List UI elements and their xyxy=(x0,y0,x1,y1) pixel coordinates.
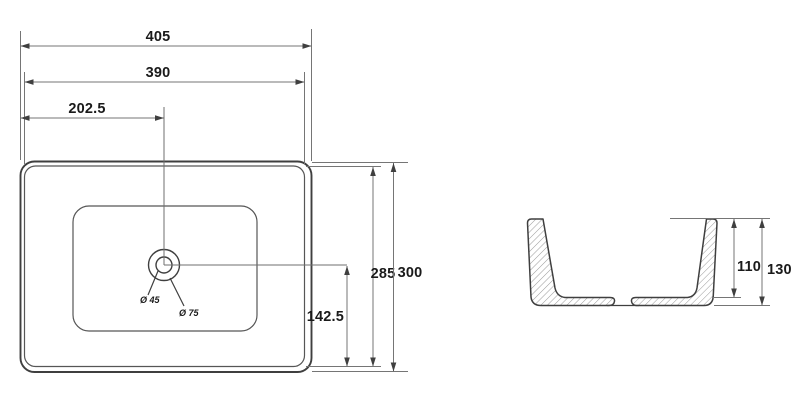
basin-bowl-outline xyxy=(73,206,257,331)
dimension-drain-center-from-bottom: 142.5 xyxy=(307,266,347,367)
section-left-wall xyxy=(528,219,615,306)
drain-recess-diameter-label: Ø 75 xyxy=(179,308,200,318)
dimension-label-300: 300 xyxy=(398,265,423,281)
side-view: 110 130 xyxy=(528,219,792,306)
dimension-label-285: 285 xyxy=(371,266,396,282)
drain-hole-diameter-label: Ø 45 xyxy=(140,295,161,305)
top-view: Ø 45 Ø 75 405 390 202.5 14 xyxy=(21,29,423,372)
dimension-rim-inner-depth: 285 xyxy=(371,167,396,367)
dimension-inner-height: 110 xyxy=(734,219,761,298)
section-right-wall xyxy=(631,219,717,306)
basin-outer-outline xyxy=(21,162,312,373)
drain-recess-leader-line xyxy=(170,278,184,306)
drain-hole-leader-line xyxy=(148,271,158,295)
dimension-label-405: 405 xyxy=(146,29,171,45)
dimension-overall-width: 405 xyxy=(21,29,312,161)
dimension-drain-center-from-left: 202.5 xyxy=(21,101,165,118)
dimension-label-142-5: 142.5 xyxy=(307,309,344,325)
dimension-label-390: 390 xyxy=(146,65,171,81)
dimension-overall-depth: 300 xyxy=(394,163,423,372)
dimension-overall-height: 130 xyxy=(762,219,792,306)
dimension-label-130: 130 xyxy=(767,262,792,278)
dimension-label-110: 110 xyxy=(737,259,761,275)
technical-drawing-canvas: Ø 45 Ø 75 405 390 202.5 14 xyxy=(0,0,800,410)
dimension-label-202-5: 202.5 xyxy=(68,101,105,117)
drawing-svg: Ø 45 Ø 75 405 390 202.5 14 xyxy=(0,0,800,410)
